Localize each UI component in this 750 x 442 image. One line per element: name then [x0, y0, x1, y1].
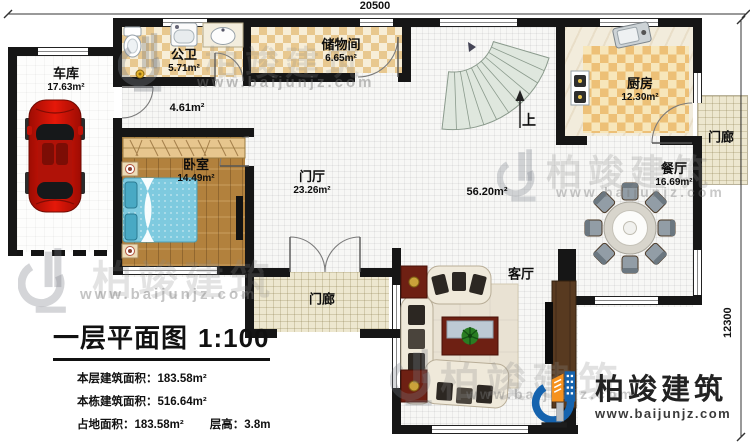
room-label-living: 客厅	[508, 268, 534, 283]
stat-value: 183.58m²	[135, 419, 184, 431]
room-name: 储物间	[321, 38, 360, 53]
stove	[571, 71, 589, 105]
bedroom-tv	[236, 196, 243, 240]
room-name: 餐厅	[655, 162, 692, 177]
watermark-logo-icon	[390, 346, 444, 408]
pillow	[125, 214, 137, 240]
room-area: 16.69m²	[655, 177, 692, 188]
plan-title-text: 一层平面图	[53, 323, 188, 353]
room-name: 门廊	[708, 131, 734, 146]
stair-start-arrow	[468, 42, 476, 52]
stat-label: 本层建筑面积：	[77, 373, 158, 385]
brand-url: www.baijunjz.com	[595, 406, 731, 421]
room-label-kitchen: 厨房 12.30m²	[621, 77, 658, 103]
brand-logo: 柏竣建筑 www.baijunjz.com	[531, 361, 731, 435]
room-label-open-area: 56.20m²	[467, 186, 508, 198]
stat-value: 183.58m²	[158, 373, 207, 385]
room-area: 5.71m²	[168, 63, 200, 74]
room-label-storage: 储物间 6.65m²	[321, 38, 360, 64]
room-name: 门厅	[293, 170, 330, 185]
stat-label: 占地面积：	[77, 419, 135, 431]
kitchen-porch-door	[652, 103, 692, 143]
room-area: 23.26m²	[293, 185, 330, 196]
room-label-garage: 车库 17.63m²	[47, 67, 84, 93]
title-block: 一层平面图1:100 本层建筑面积：183.58m² 本栋建筑面积：516.64…	[53, 318, 270, 439]
plan-title: 一层平面图1:100	[53, 318, 270, 361]
dimension-top: 20500	[360, 0, 391, 12]
room-area: 56.20m²	[467, 186, 508, 198]
watermark-logo-icon	[118, 30, 174, 94]
room-label-front-porch: 门廊	[309, 293, 335, 308]
room-label-bathroom: 公卫 5.71m²	[168, 48, 200, 74]
bed	[123, 178, 197, 242]
room-label-foyer: 门厅 23.26m²	[293, 170, 330, 196]
room-label-dining: 餐厅 16.69m²	[655, 162, 692, 188]
room-area: 12.30m²	[621, 92, 658, 103]
stat-row: 占地面积：183.58m²层高：3.8m	[77, 416, 270, 432]
entry-double-doors	[290, 237, 360, 272]
bedroom-set	[122, 138, 245, 258]
room-area: 17.63m²	[47, 82, 84, 93]
wardrobe	[123, 138, 245, 158]
watermark-url: www.baijunjz.com	[556, 184, 725, 200]
stat-label: 层高：	[210, 419, 245, 431]
dimension-right: 12300	[722, 307, 734, 338]
room-name: 公卫	[168, 48, 200, 63]
floor-plan: 柏竣建筑 www.baijunjz.com 柏竣建筑 www.baijunjz.…	[0, 0, 750, 442]
car	[25, 100, 85, 212]
brand-name: 柏竣建筑	[595, 375, 731, 405]
stat-row: 本层建筑面积：183.58m²	[77, 370, 270, 386]
plan-scale: 1:100	[198, 323, 270, 353]
room-name: 厨房	[621, 77, 658, 92]
room-area: 6.65m²	[321, 53, 360, 64]
room-label-side-porch: 门廊	[708, 131, 734, 146]
stat-value: 3.8m	[244, 419, 270, 431]
shower-unit	[171, 23, 197, 46]
room-area: 4.61m²	[170, 102, 205, 114]
stat-row: 本栋建筑面积：516.64m²	[77, 393, 270, 409]
pillow	[125, 182, 137, 208]
kitchen-sink	[612, 21, 651, 48]
watermark-logo-icon	[18, 244, 80, 316]
stat-label: 本栋建筑面积：	[77, 396, 158, 408]
watermark-url: www.baijunjz.com	[197, 74, 374, 91]
room-name: 门廊	[309, 293, 335, 308]
room-name: 车库	[47, 67, 84, 82]
room-label-hall: 4.61m²	[170, 102, 205, 114]
brand-logo-icon	[531, 361, 589, 435]
stairs-up-label: 上	[522, 113, 536, 129]
watermark-url: www.baijunjz.com	[80, 286, 257, 303]
room-label-bedroom: 卧室 14.49m²	[177, 158, 214, 184]
stat-value: 516.64m²	[158, 396, 207, 408]
brand-text: 柏竣建筑 www.baijunjz.com	[595, 375, 731, 420]
plan-stats: 本层建筑面积：183.58m² 本栋建筑面积：516.64m² 占地面积：183…	[77, 370, 270, 432]
room-name: 客厅	[508, 268, 534, 283]
room-name: 卧室	[177, 158, 214, 173]
room-area: 14.49m²	[177, 173, 214, 184]
